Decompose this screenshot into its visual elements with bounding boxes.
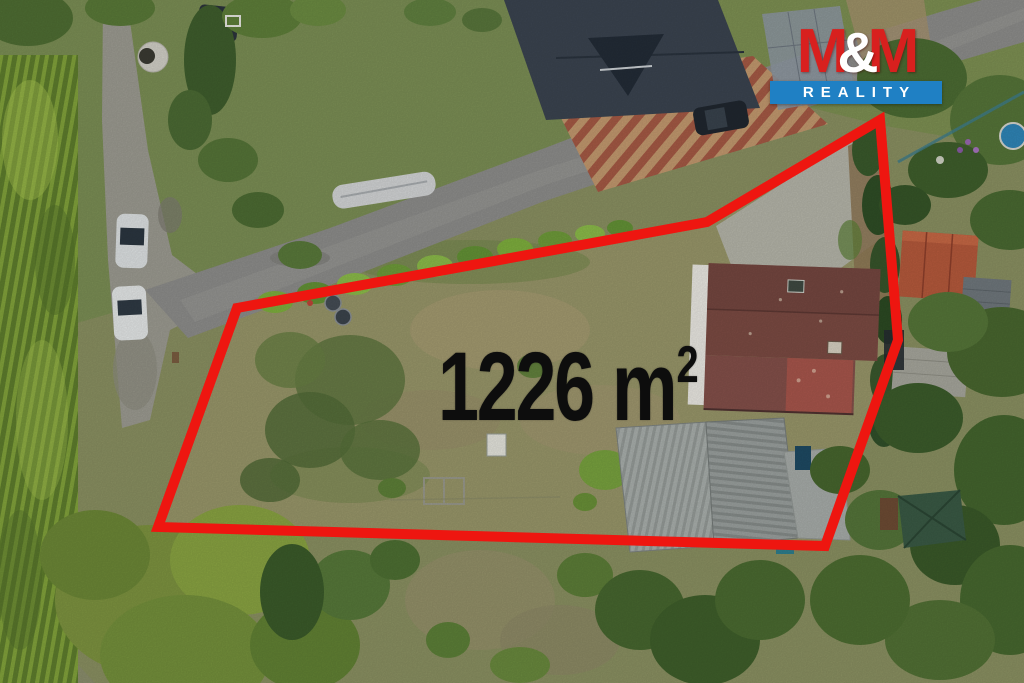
area-unit-base: m (612, 332, 675, 441)
area-label: 1226m2 (438, 338, 699, 435)
logo-ampersand-icon: & (837, 21, 874, 85)
logo-wordmark: M&M (770, 24, 942, 80)
aerial-photo: 1226m2 M&M REALITY (0, 0, 1024, 683)
area-unit-exponent: 2 (677, 336, 699, 394)
realty-logo: M&M REALITY (770, 24, 942, 104)
area-value: 1226 (438, 332, 593, 441)
